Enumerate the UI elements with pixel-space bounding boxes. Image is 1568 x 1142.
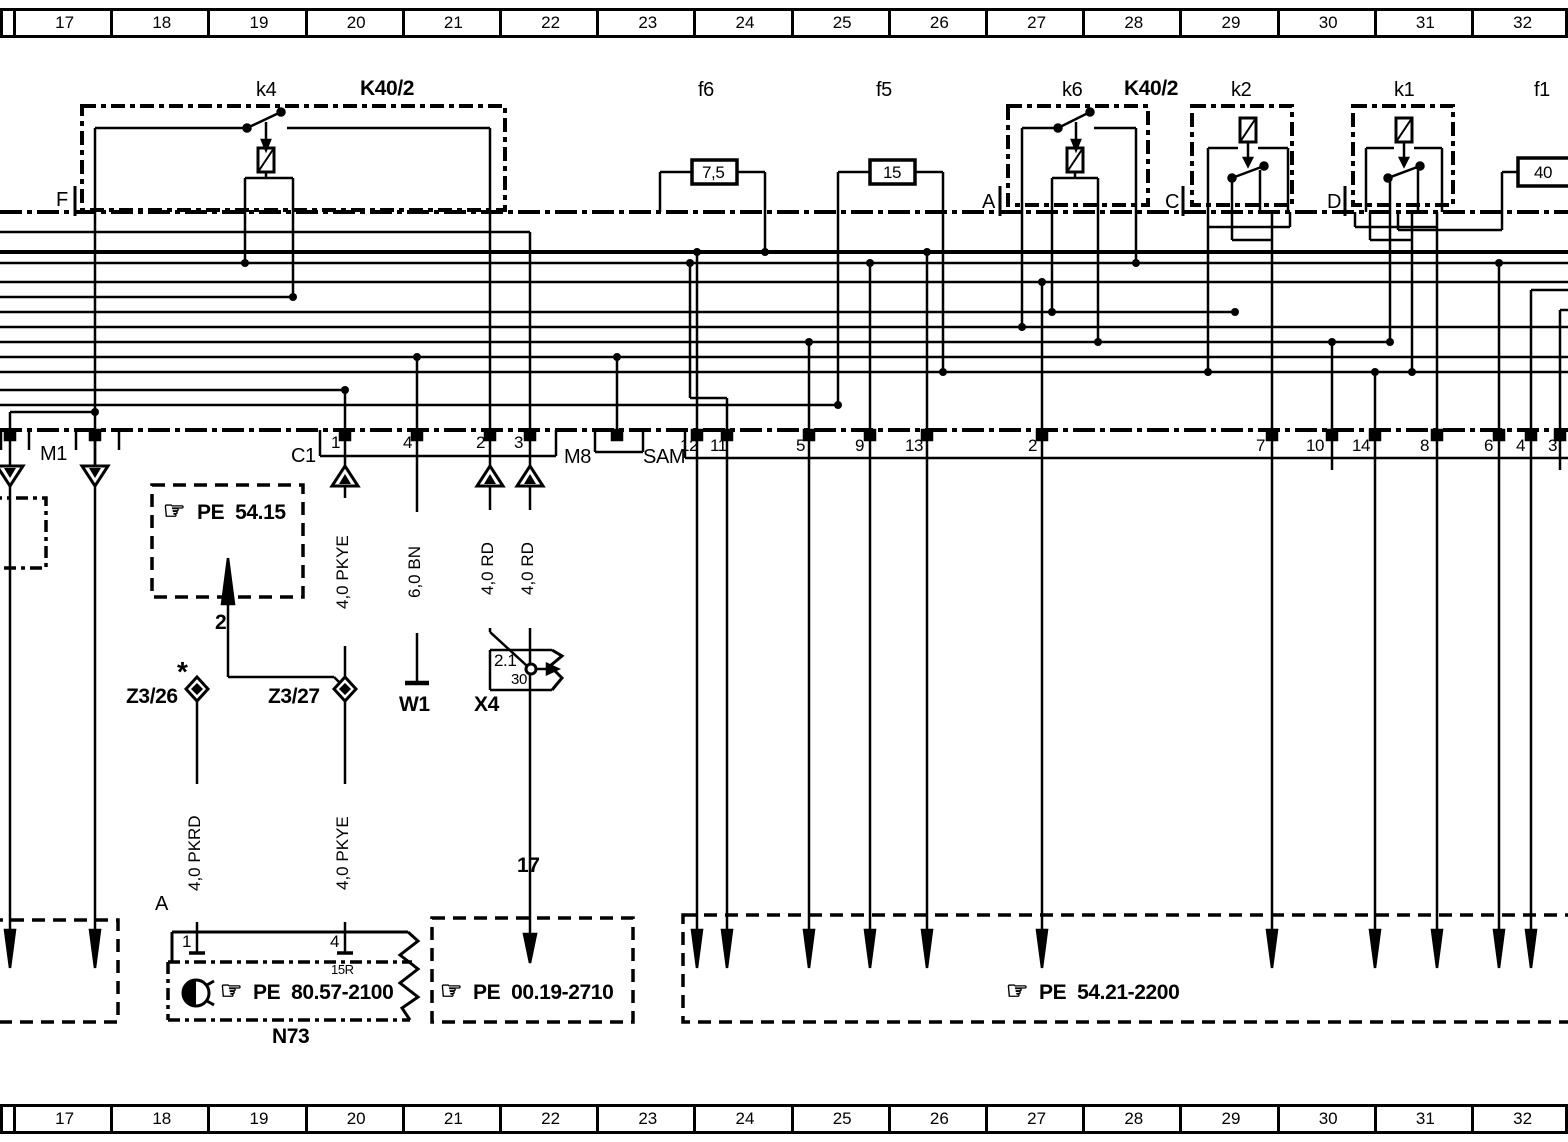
sam-pin-5: 5 [796, 437, 805, 454]
ruler-bottom-cell-21: 21 [402, 1107, 502, 1131]
component-n73 [168, 932, 418, 1020]
relay-k6-label: k6 [1062, 80, 1082, 100]
sam-pin-3: 3 [1548, 437, 1557, 454]
connector-m8 [595, 430, 643, 452]
ruler-bottom-cell-25: 25 [791, 1107, 891, 1131]
fuse-f6-label: f6 [698, 80, 714, 100]
connector-m8-label: M8 [564, 447, 591, 467]
grid-ruler-bottom: 17181920212223242526272829303132 [0, 1104, 1568, 1134]
sam-pin-4: 4 [1516, 437, 1525, 454]
component-w1-label: W1 [399, 694, 430, 715]
c1-pin-4: 4 [403, 434, 412, 451]
wiring-diagram-page: 17181920212223242526272829303132 1718192… [0, 0, 1568, 1142]
section-d-label: D [1327, 192, 1341, 212]
ruler-bottom-cell-19: 19 [207, 1107, 307, 1131]
wire-label-bn: 6,0 BN [404, 512, 426, 633]
component-n73-label: N73 [272, 1026, 309, 1047]
connector-c1-label: C1 [291, 446, 316, 466]
relay-k6 [1008, 106, 1148, 342]
ruler-bottom-cell-32: 32 [1471, 1107, 1568, 1131]
ruler-bottom-cell-22: 22 [499, 1107, 599, 1131]
ruler-bottom-cell-23: 23 [596, 1107, 696, 1131]
component-x4-label: X4 [474, 694, 499, 715]
c1-pin-1: 1 [331, 434, 340, 451]
sam-output-wires [692, 430, 1536, 968]
fuse-f5-label: f5 [876, 80, 892, 100]
ruler-bottom-cell-26: 26 [888, 1107, 988, 1131]
sam-pin-8: 8 [1420, 437, 1429, 454]
ruler-top-cell-32: 32 [1471, 11, 1568, 35]
ruler-top-cell-24: 24 [693, 11, 793, 35]
ruler-top-cell-21: 21 [402, 11, 502, 35]
terminal-z3-27-label: Z3/27 [268, 686, 320, 707]
wire-label-pkye-lower: 4,0 PKYE [332, 784, 354, 922]
wire-label-rd-left: 4,0 RD [477, 510, 499, 628]
ruler-bottom-cell-27: 27 [985, 1107, 1085, 1131]
c1-branch-wires [332, 430, 543, 963]
sam-pin-14: 14 [1352, 437, 1370, 454]
sam-pin-6: 6 [1484, 437, 1493, 454]
relay-k2-label: k2 [1231, 80, 1251, 100]
ruler-bottom-cell-24: 24 [693, 1107, 793, 1131]
relay-k1-label: k1 [1394, 80, 1414, 100]
ruler-bottom-cell-20: 20 [305, 1107, 405, 1131]
ruler-top-cell-17: 17 [13, 11, 113, 35]
ruler-top-cell-31: 31 [1374, 11, 1474, 35]
ref-pe-54-15: PE 54.15 [197, 502, 286, 523]
module-k40-2-left-label: K40/2 [360, 78, 414, 99]
branch-2-label: 2 [215, 612, 226, 633]
sam-pin-12: 12 [680, 437, 698, 454]
fuse-f1-label: f1 [1534, 80, 1550, 100]
relay-k4-label: k4 [256, 80, 276, 100]
ruler-top-cell-19: 19 [207, 11, 307, 35]
wire-label-pkye-upper: 4,0 PKYE [332, 498, 354, 646]
n73-section-a-label: A [155, 894, 168, 914]
wire-label-pkrd: 4,0 PKRD [184, 784, 206, 922]
section-f-label: F [56, 190, 68, 210]
ref-pe-54-21-2200-hand: ☞ [1006, 979, 1028, 1004]
grid-ruler-top: 17181920212223242526272829303132 [0, 8, 1568, 38]
ruler-top-cell-27: 27 [985, 11, 1085, 35]
relay-k2 [1192, 106, 1292, 930]
x4-code: 2.1 [494, 652, 516, 669]
ruler-bottom-cell-17: 17 [13, 1107, 113, 1131]
left-edge-component-box [0, 498, 46, 568]
sam-pin-9: 9 [855, 437, 864, 454]
n73-terminal-15r: 15R [331, 963, 354, 976]
fuse-f6-value: 7,5 [702, 164, 724, 181]
sam-pin-13: 13 [905, 437, 923, 454]
relay-k4 [82, 106, 505, 466]
connector-m1-label: M1 [40, 444, 67, 464]
ruler-top-cell-20: 20 [305, 11, 405, 35]
module-sam-label: SAM [643, 447, 685, 467]
wire-17-label: 17 [517, 855, 540, 876]
m1-branch-wires [0, 412, 108, 968]
section-c-label: C [1165, 192, 1179, 212]
ref-pe-54-21-2200: PE 54.21-2200 [1039, 982, 1179, 1003]
ref-pe-00-19-2710: PE 00.19-2710 [473, 982, 613, 1003]
wiring-diagram-drawing [0, 0, 1568, 1142]
ruler-top-cell-23: 23 [596, 11, 696, 35]
sam-pin-10: 10 [1306, 437, 1324, 454]
ruler-bottom-cell-29: 29 [1179, 1107, 1279, 1131]
fuse-f5-value: 15 [883, 164, 901, 181]
sam-pin-7: 7 [1256, 437, 1265, 454]
ruler-top-cell-29: 29 [1179, 11, 1279, 35]
ruler-bottom-cell-30: 30 [1277, 1107, 1377, 1131]
n73-pin-4: 4 [330, 933, 339, 950]
terminal-z3-26-label: Z3/26 [126, 686, 178, 707]
sam-pin-11: 11 [710, 437, 727, 454]
module-k40-2-right-label: K40/2 [1124, 78, 1178, 99]
ruler-top-cell-30: 30 [1277, 11, 1377, 35]
mesh-vertical-wires [345, 232, 1560, 430]
ruler-top-cell-28: 28 [1082, 11, 1182, 35]
ruler-bottom-cell-18: 18 [110, 1107, 210, 1131]
c1-pin-3: 3 [514, 434, 523, 451]
ruler-top-cell-26: 26 [888, 11, 988, 35]
ruler-top-cell-22: 22 [499, 11, 599, 35]
c1-pin-2: 2 [476, 434, 485, 451]
ref-pe-80-57-2100-hand: ☞ [220, 979, 242, 1004]
ruler-bottom-cell-31: 31 [1374, 1107, 1474, 1131]
wire-label-rd-right: 4,0 RD [517, 510, 539, 628]
x4-terminal-30: 30 [511, 672, 527, 687]
section-a-label: A [982, 192, 995, 212]
n73-pin-1: 1 [182, 933, 191, 950]
ref-pe-00-19-2710-hand: ☞ [440, 979, 462, 1004]
sam-pin-2: 2 [1028, 437, 1037, 454]
ruler-top-cell-25: 25 [791, 11, 891, 35]
ref-pe-80-57-2100: PE 80.57-2100 [253, 982, 393, 1003]
ruler-bottom-cell-28: 28 [1082, 1107, 1182, 1131]
module-sam-strip [685, 430, 1568, 470]
z3-26-asterisk: * [177, 658, 188, 686]
fuse-f1-value: 40 [1534, 164, 1552, 181]
ruler-top-cell-18: 18 [110, 11, 210, 35]
ref-pe-54-15-hand: ☞ [163, 499, 185, 524]
